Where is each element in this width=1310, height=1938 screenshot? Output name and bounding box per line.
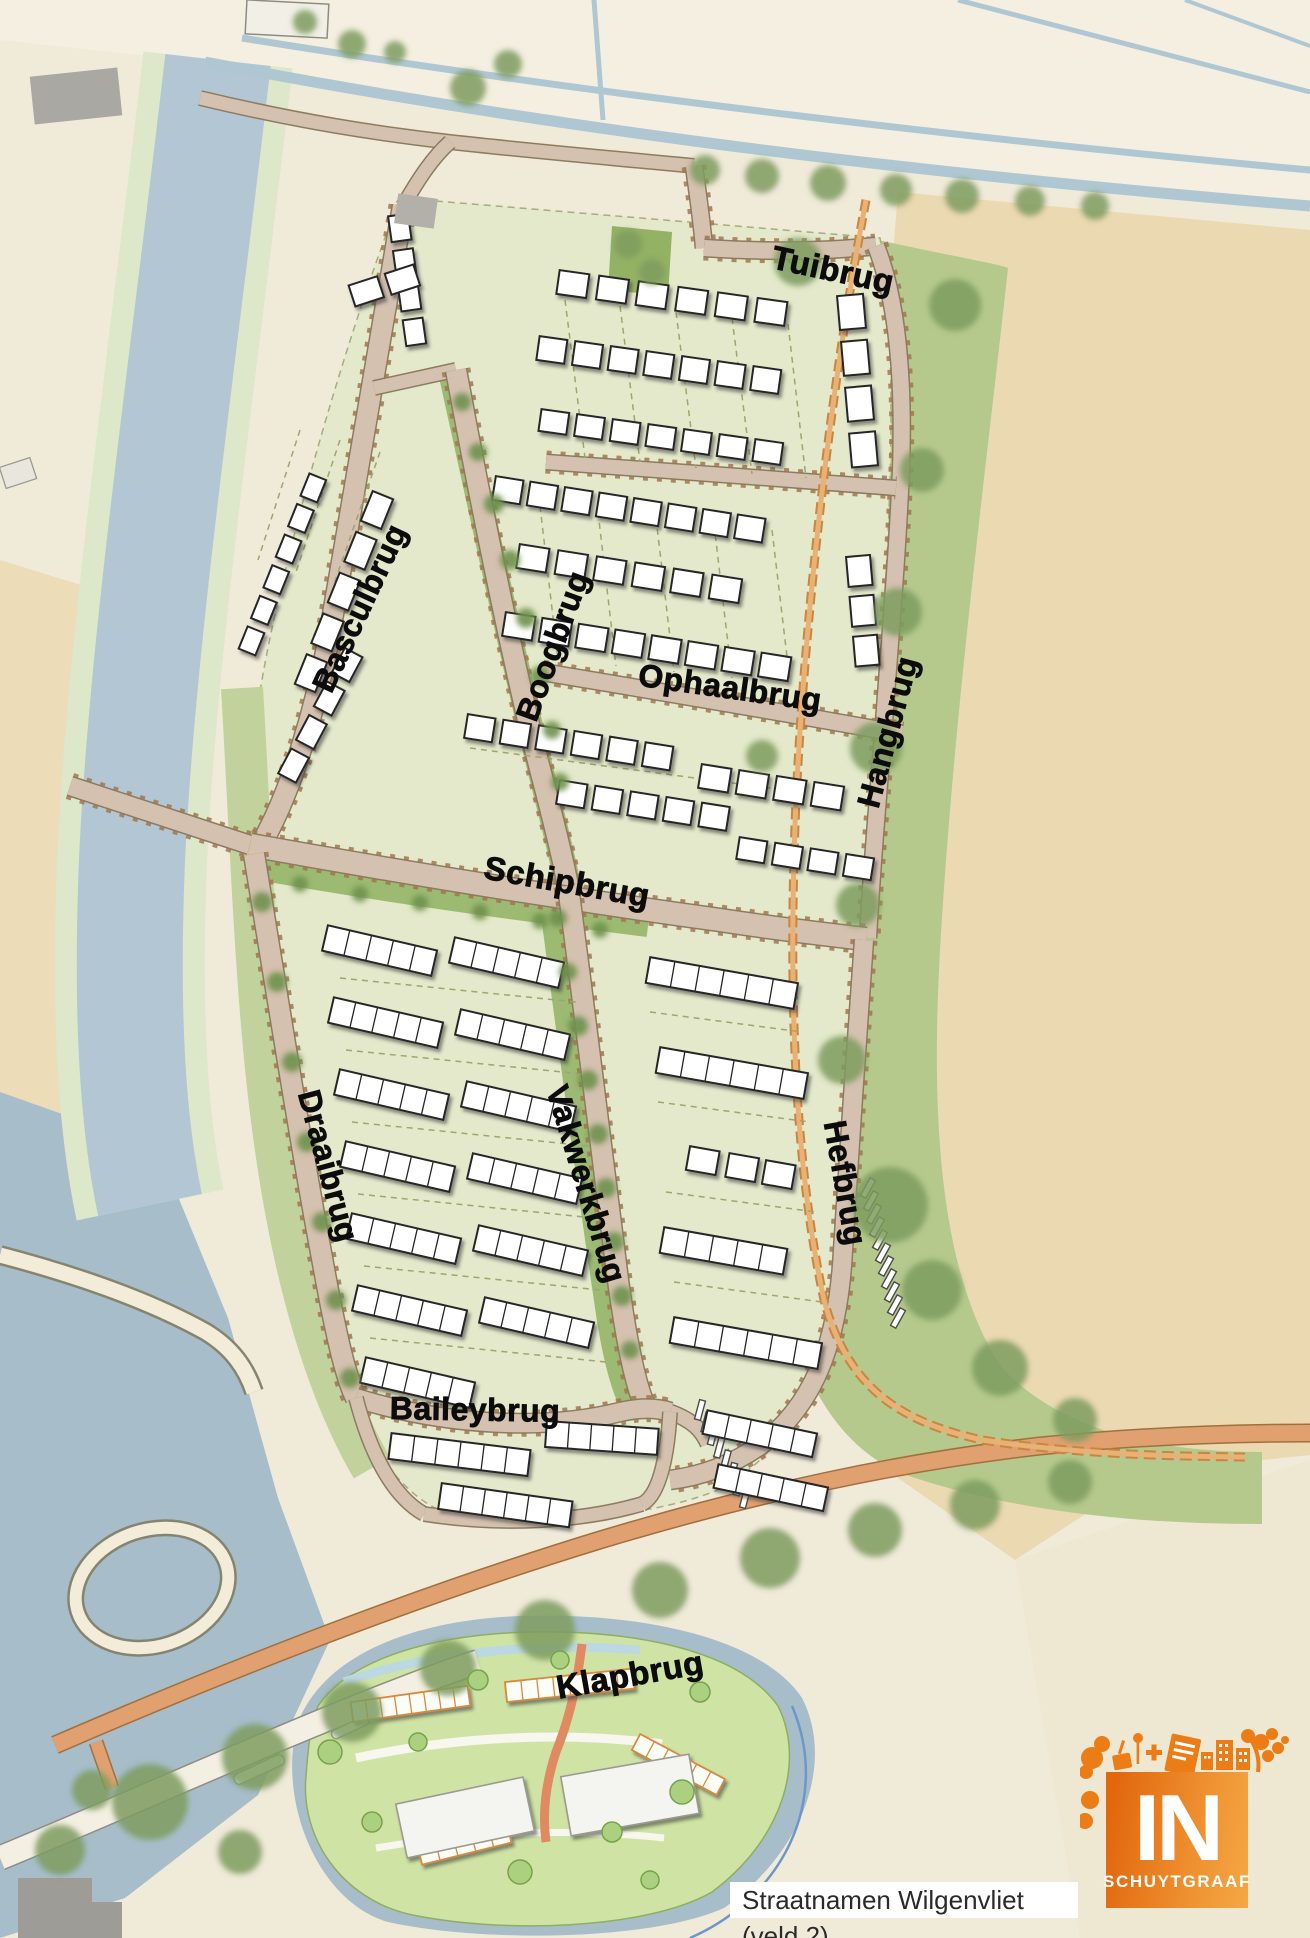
logo-square: IN SCHUYTGRAAF <box>1106 1772 1248 1908</box>
logo-subtitle: SCHUYTGRAAF <box>1103 1872 1251 1892</box>
map-page: TuibrugBasculbrugBoogbrugOphaalbrugHangb… <box>0 0 1310 1938</box>
logo-inschuytgraaf: IN SCHUYTGRAAF <box>1080 1728 1310 1938</box>
map-image <box>0 0 1310 1938</box>
caption: Straatnamen Wilgenvliet (veld 2) <box>730 1882 1078 1918</box>
street-label-baileybrug: Baileybrug <box>390 1390 561 1430</box>
logo-word: IN <box>1134 1788 1220 1869</box>
